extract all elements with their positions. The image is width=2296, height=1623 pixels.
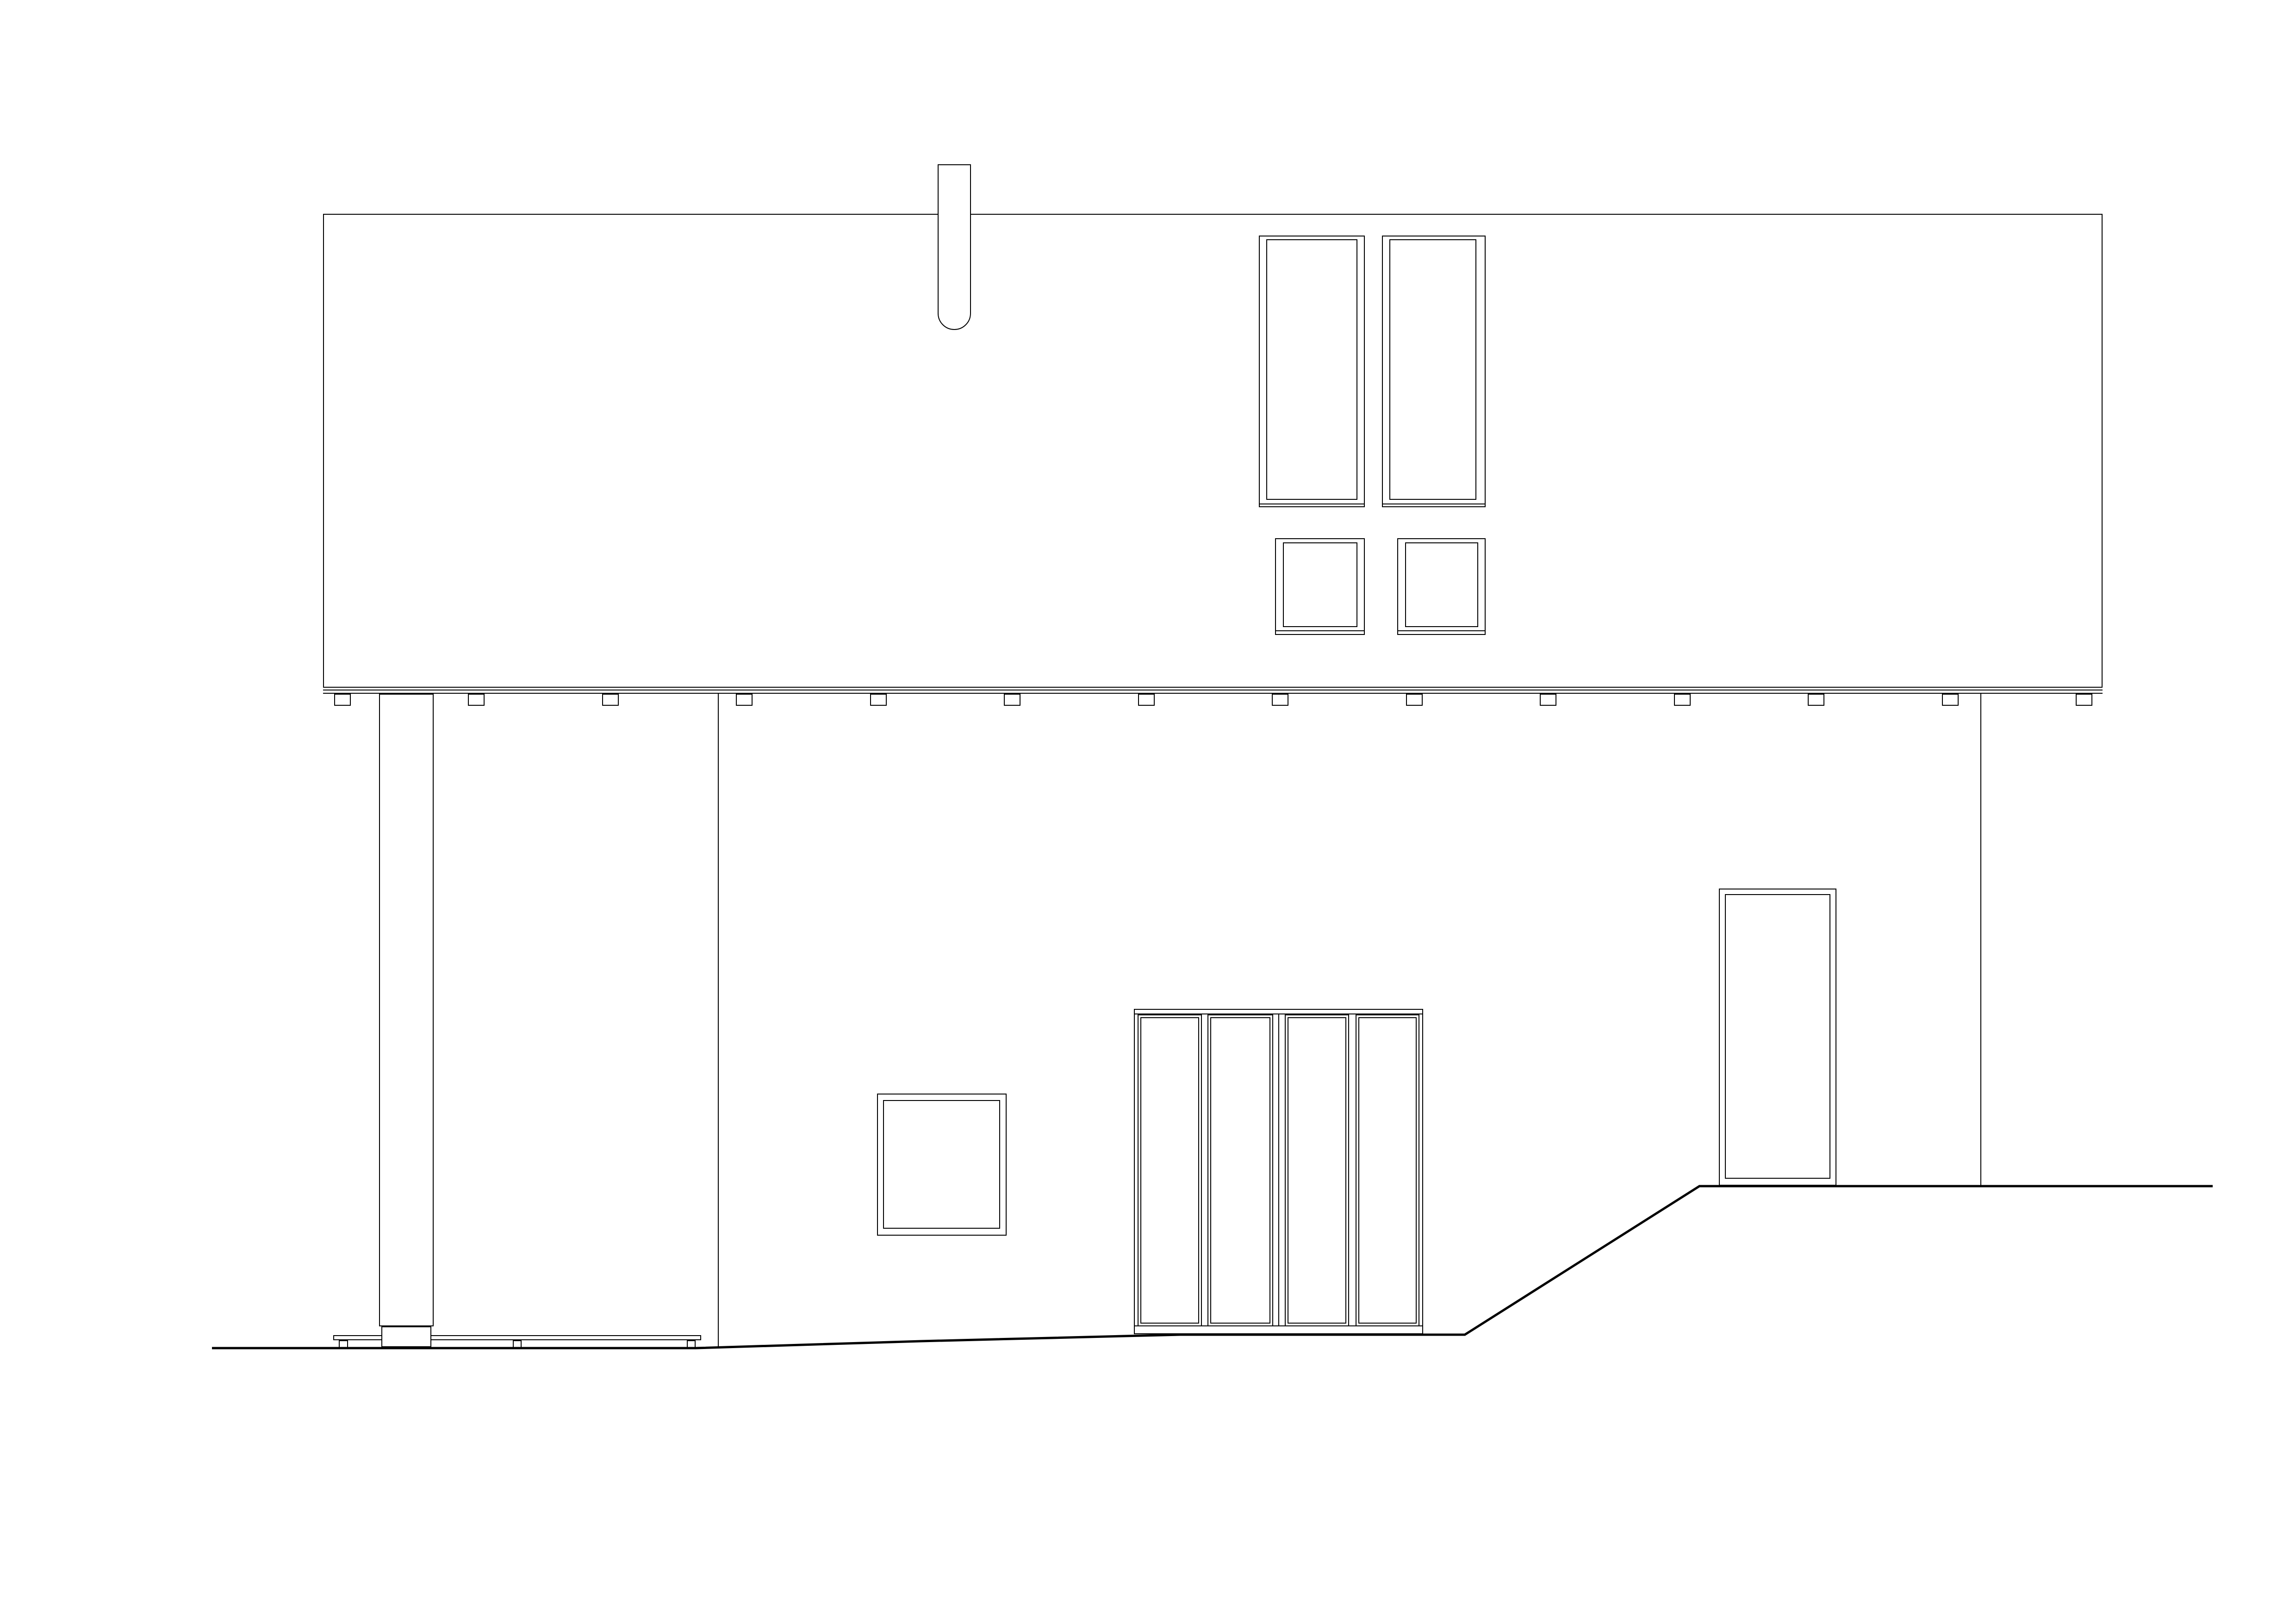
rafter-tail xyxy=(1004,694,1020,706)
terrain-path xyxy=(212,1186,2213,1348)
rafter-tail xyxy=(1674,694,1691,706)
terrain-ground-line xyxy=(0,0,2296,1623)
rafter-tail xyxy=(1540,694,1556,706)
rafter-tail xyxy=(1942,694,1959,706)
elevation-drawing-canvas xyxy=(0,0,2296,1623)
rafter-tail xyxy=(1272,694,1288,706)
rafter-tail xyxy=(870,694,887,706)
rafter-tail xyxy=(1138,694,1155,706)
rafter-tail xyxy=(334,694,351,706)
rafter-tail xyxy=(468,694,485,706)
rafter-tail xyxy=(1808,694,1824,706)
rafter-tail xyxy=(2076,694,2092,706)
rafter-tail xyxy=(602,694,619,706)
rafter-tail xyxy=(1406,694,1423,706)
rafter-tail xyxy=(736,694,753,706)
